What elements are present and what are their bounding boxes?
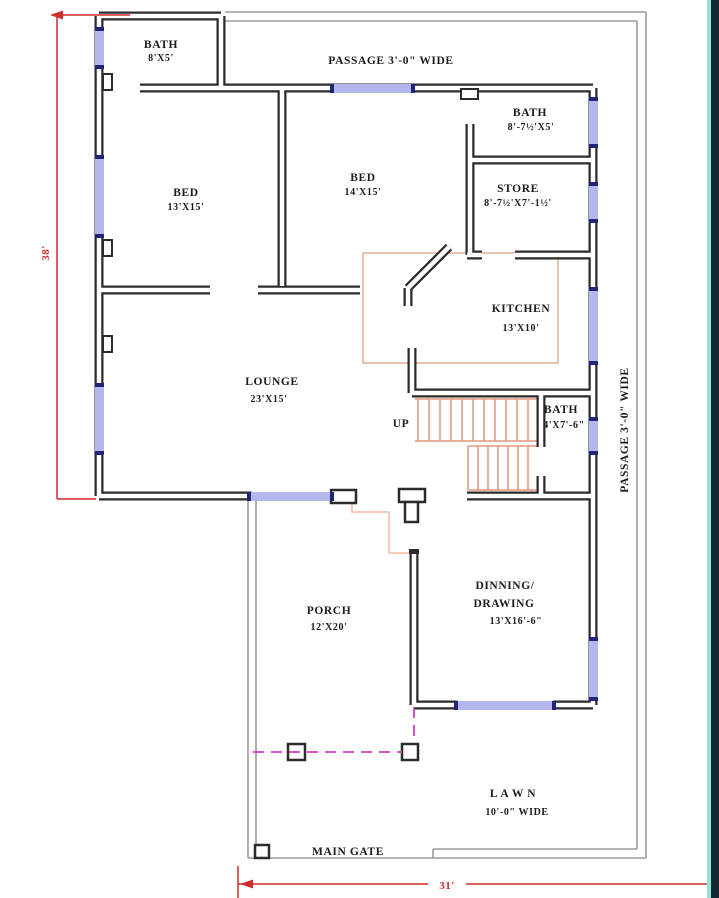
porch-column	[331, 490, 356, 503]
room-size-bed-middle: 14'X15'	[345, 187, 382, 198]
door-path-marks	[352, 500, 410, 553]
room-size-store: 8'-7½'X7'-1½'	[484, 198, 552, 209]
room-size-kitchen: 13'X10'	[503, 323, 540, 334]
stairs-upper-flight	[415, 399, 537, 441]
wall-end-cap	[409, 549, 419, 554]
room-label-bath-top-left: BATH	[144, 39, 178, 51]
room-label-dinning-line2: DRAWING	[473, 598, 534, 610]
room-label-dinning-line1: DINNING/	[475, 580, 534, 592]
passage-right-label: PASSAGE 3'-0" WIDE	[619, 367, 631, 492]
porch-t-column-stem	[405, 502, 418, 522]
door-jambs	[103, 74, 478, 352]
room-label-lounge: LOUNGE	[245, 376, 298, 388]
stairs-lower-flight	[468, 446, 537, 490]
room-size-bath-top-right: 8'-7½'X5'	[508, 122, 555, 133]
passage-top-label: PASSAGE 3'-0" WIDE	[328, 55, 453, 67]
room-label-bath-stairs: BATH	[544, 404, 578, 416]
floor-plan-page: 31' 38' BATH 8'X5' PASSAGE 3'-0" WIDE BA…	[0, 0, 719, 898]
room-size-lounge: 23'X15'	[251, 394, 288, 405]
gate-column-right	[402, 744, 418, 760]
room-size-bed-left: 13'X15'	[168, 202, 205, 213]
dimension-arrow-bottom	[240, 880, 253, 889]
boundary-gate-post	[255, 845, 269, 858]
plot-height-dimension: 38'	[40, 245, 52, 261]
plot-boundary	[225, 12, 646, 858]
room-label-store: STORE	[497, 183, 539, 195]
room-size-lawn: 10'-0" WIDE	[485, 807, 548, 818]
porch-gate-dashed-line	[253, 707, 414, 752]
room-size-bath-stairs: 4'X7'-6"	[543, 420, 584, 431]
room-label-porch: PORCH	[307, 605, 352, 617]
room-size-dinning: 13'X16'-6"	[490, 616, 543, 627]
main-gate-label: MAIN GATE	[312, 846, 384, 858]
plot-width-dimension: 31'	[439, 880, 455, 892]
floor-plan-drawing: 31' 38' BATH 8'X5' PASSAGE 3'-0" WIDE BA…	[0, 0, 719, 898]
screen-edge-strip	[707, 0, 719, 898]
staircase	[415, 399, 537, 490]
room-label-lawn: L A W N	[490, 788, 536, 800]
room-label-bed-left: BED	[173, 187, 198, 199]
room-size-bath-top-left: 8'X5'	[148, 53, 174, 64]
dimension-lines: 31' 38'	[40, 11, 714, 898]
room-label-bed-middle: BED	[350, 172, 375, 184]
room-label-kitchen: KITCHEN	[492, 303, 551, 315]
stairs-up-label: UP	[393, 418, 410, 430]
room-size-porch: 12'X20'	[311, 622, 348, 633]
columns	[255, 489, 425, 858]
porch-t-column	[399, 489, 425, 502]
room-label-bath-top-right: BATH	[513, 107, 547, 119]
